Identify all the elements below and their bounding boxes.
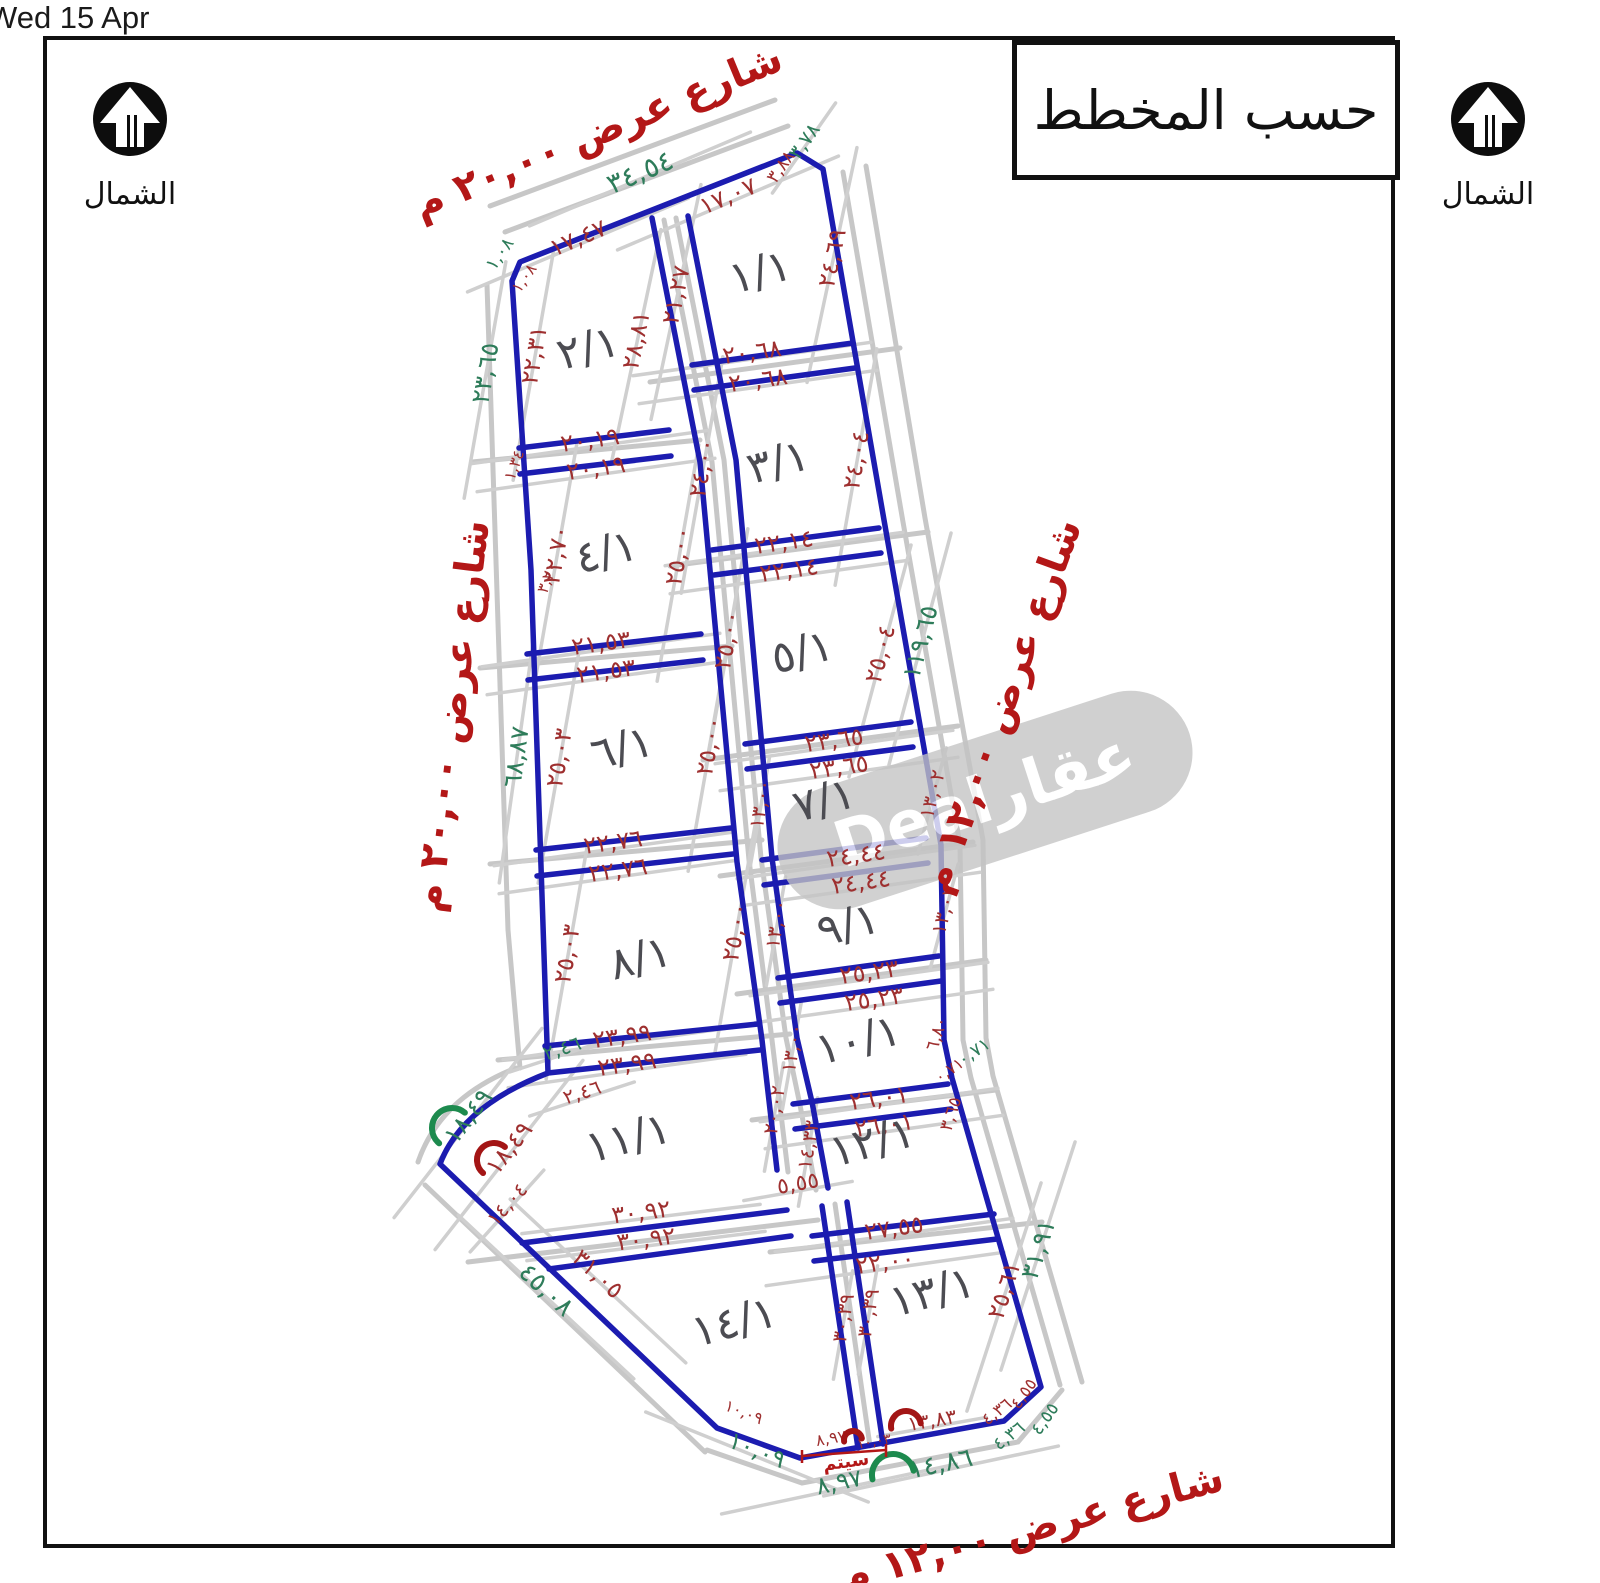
plot-number-label: ١١/١ xyxy=(580,1102,676,1173)
dimension-label-red: ١٠,٠٩ xyxy=(722,1396,766,1428)
dimension-label-red: ٣٠,٣٩ xyxy=(852,1287,884,1340)
north-indicator-left: الشمال xyxy=(70,73,190,212)
dimension-label-red: ٢٢,٣١ xyxy=(515,323,553,386)
dimension-label-red: ١٤,٠٤ xyxy=(482,1178,533,1231)
plot-number-label: ٢/١ xyxy=(551,315,624,380)
plot-number-label: ١٢/١ xyxy=(824,1106,920,1177)
north-indicator-right: الشمال xyxy=(1428,73,1548,212)
dimension-label-red: ٢٠,٠٢ xyxy=(758,1084,790,1137)
dimension-label-red: ٢٧,٥٥ xyxy=(863,1210,926,1246)
plot-number-label: ١٠/١ xyxy=(810,1004,906,1075)
dimension-label-red: ٥,٥٥ xyxy=(775,1168,821,1200)
north-label: الشمال xyxy=(70,177,190,212)
dimension-label-red: ٣,٦٥ xyxy=(936,1094,967,1134)
plot-number-label: ٦/١ xyxy=(585,715,658,780)
plot-number-label: ١/١ xyxy=(723,239,796,304)
dimension-label-red: ١٣,٠٠ xyxy=(760,898,792,951)
dimension-label-red: ١٨,٤٩ xyxy=(480,1116,539,1180)
dimension-label-green: ١٤,٨٦ xyxy=(907,1443,976,1486)
plan-page: Wed 15 Apr عقارDeal١٧,٤٧١٧,٠٧٣,٨٨١,٠٨٢١,… xyxy=(0,0,1600,1583)
dimension-label-red: ٢٥,٠٣ xyxy=(548,922,586,985)
dimension-label-red: ١٧,٤٧ xyxy=(545,214,611,263)
dimension-label-red: ٢٥,٠٣ xyxy=(540,726,578,789)
dimension-label-green: ١,٠٨ xyxy=(481,233,518,274)
dimension-label-red: ٢٥,٠٠ xyxy=(690,714,728,777)
page-title: حسب المخطط xyxy=(1034,79,1379,142)
north-arrow-icon xyxy=(70,73,190,165)
north-label: الشمال xyxy=(1428,177,1548,212)
street-bottom: شارع عرض ١٢,٠٠ م xyxy=(835,1455,1228,1583)
plot-number-label: ١٤/١ xyxy=(686,1286,782,1357)
title-box: حسب المخطط xyxy=(1012,40,1400,180)
dimension-label-red: ٣,٢٠ xyxy=(533,560,561,596)
dimension-label-red: ٢٥,٠٤ xyxy=(859,622,901,686)
subdivision-plan-canvas: عقارDeal١٧,٤٧١٧,٠٧٣,٨٨١,٠٨٢١,٢٧٢٨,٨١٢٢,٣… xyxy=(0,0,1600,1583)
dimension-label-green: ٢٣,٦٥ xyxy=(465,340,504,406)
dimension-label-red: ٢٤,٠٤ xyxy=(837,428,875,491)
status-bar-date: Wed 15 Apr xyxy=(0,0,149,36)
dimension-label-red: ٢٤,٦٩ xyxy=(812,226,852,290)
plot-number-label: ٣/١ xyxy=(741,429,814,494)
dimension-label-green: ٤,٥٥ xyxy=(1026,1399,1063,1439)
plot-number-label: ٤/١ xyxy=(569,519,642,584)
plot-number-label: ٨/١ xyxy=(603,925,676,990)
north-arrow-icon xyxy=(1428,73,1548,165)
street-left: شارع عرض ٢٠,٠٠ م xyxy=(405,517,499,914)
dimension-label-red: ٢٥,٠٠ xyxy=(659,524,697,587)
plot-number-label: ٥/١ xyxy=(765,619,838,684)
